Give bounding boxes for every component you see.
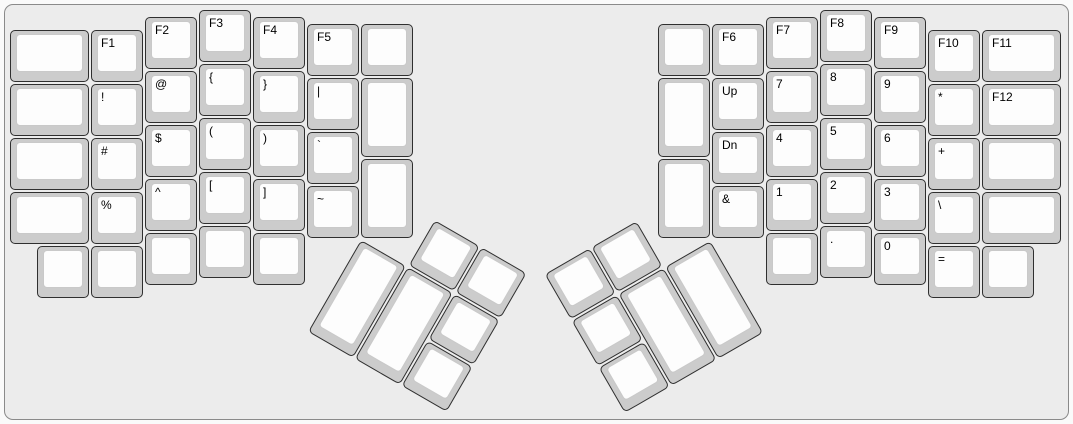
keytop: % <box>97 196 137 234</box>
keytop <box>367 28 407 66</box>
key-legend: % <box>101 198 112 213</box>
key-legend: F7 <box>776 23 790 38</box>
key-paren-close[interactable]: ) <box>253 125 305 177</box>
key-legend: F3 <box>209 16 223 31</box>
key-digit-5[interactable]: 5 <box>820 118 872 170</box>
key-digit-4[interactable]: 4 <box>766 125 818 177</box>
key-legend: 1 <box>776 185 783 200</box>
key-blank[interactable] <box>361 24 413 76</box>
keytop <box>552 254 606 307</box>
key-blank[interactable] <box>145 233 197 285</box>
key-legend: Dn <box>722 138 737 153</box>
keytop: . <box>826 230 866 268</box>
keytop: + <box>934 142 974 180</box>
keytop: F7 <box>772 21 812 59</box>
key-down[interactable]: Dn <box>712 132 764 184</box>
key-f8[interactable]: F8 <box>820 10 872 62</box>
key-legend: 7 <box>776 77 783 92</box>
key-legend: # <box>101 144 108 159</box>
key-brace-close[interactable]: } <box>253 71 305 123</box>
keytop <box>205 230 245 268</box>
key-legend: 6 <box>884 131 891 146</box>
key-legend: @ <box>155 77 167 92</box>
key-blank[interactable] <box>10 192 89 244</box>
key-legend: F6 <box>722 30 736 45</box>
keytop: ) <box>259 129 299 167</box>
key-legend: 2 <box>830 178 837 193</box>
key-digit-0[interactable]: 0 <box>874 233 926 285</box>
keytop: @ <box>151 75 191 113</box>
key-legend: \ <box>938 198 941 213</box>
keytop: 0 <box>880 237 920 275</box>
key-plus[interactable]: + <box>928 138 980 190</box>
key-legend: . <box>830 232 833 247</box>
key-legend: ( <box>209 124 213 139</box>
keytop <box>259 237 299 275</box>
keytop <box>466 253 520 306</box>
keytop: [ <box>205 176 245 214</box>
key-legend: ! <box>101 90 104 105</box>
keytop: & <box>718 190 758 228</box>
keytop <box>664 163 704 228</box>
keytop: ! <box>97 88 137 126</box>
key-f7[interactable]: F7 <box>766 17 818 69</box>
key-digit-2[interactable]: 2 <box>820 172 872 224</box>
key-blank[interactable] <box>658 78 710 157</box>
key-period[interactable]: . <box>820 226 872 278</box>
keytop <box>367 82 407 147</box>
key-legend: F12 <box>992 90 1013 105</box>
keytop: 2 <box>826 176 866 214</box>
key-blank[interactable] <box>361 78 413 157</box>
key-legend: F9 <box>884 23 898 38</box>
keytop: F2 <box>151 21 191 59</box>
key-legend: 5 <box>830 124 837 139</box>
keytop <box>599 227 653 280</box>
keytop: 8 <box>826 68 866 106</box>
key-legend: F1 <box>101 36 115 51</box>
keytop: \ <box>934 196 974 234</box>
key-pipe[interactable]: | <box>307 78 359 130</box>
key-blank[interactable] <box>658 159 710 238</box>
key-legend: & <box>722 192 730 207</box>
keytop: | <box>313 82 353 120</box>
keytop <box>988 142 1055 180</box>
keytop: } <box>259 75 299 113</box>
key-blank[interactable] <box>91 246 143 298</box>
keytop: F10 <box>934 34 974 72</box>
keytop <box>16 34 83 72</box>
key-legend: ] <box>263 185 266 200</box>
keytop <box>988 196 1055 234</box>
keytop <box>419 226 473 279</box>
keytop: ] <box>259 183 299 221</box>
key-digit-8[interactable]: 8 <box>820 64 872 116</box>
key-f10[interactable]: F10 <box>928 30 980 82</box>
key-ampersand[interactable]: & <box>712 186 764 238</box>
keytop: 4 <box>772 129 812 167</box>
key-f2[interactable]: F2 <box>145 17 197 69</box>
key-paren-open[interactable]: ( <box>199 118 251 170</box>
key-legend: ~ <box>317 192 324 207</box>
key-legend: 4 <box>776 131 783 146</box>
key-blank[interactable] <box>982 246 1034 298</box>
keytop: 1 <box>772 183 812 221</box>
keytop <box>664 82 704 147</box>
key-digit-3[interactable]: 3 <box>874 179 926 231</box>
key-blank[interactable] <box>766 233 818 285</box>
key-blank[interactable] <box>982 192 1061 244</box>
keytop: 9 <box>880 75 920 113</box>
key-legend: Up <box>722 84 737 99</box>
key-blank[interactable] <box>658 24 710 76</box>
key-legend: $ <box>155 131 162 146</box>
key-legend: F8 <box>830 16 844 31</box>
key-legend: 0 <box>884 239 891 254</box>
keytop: = <box>934 250 974 288</box>
keytop <box>16 196 83 234</box>
key-f4[interactable]: F4 <box>253 17 305 69</box>
key-digit-7[interactable]: 7 <box>766 71 818 123</box>
keytop <box>772 237 812 275</box>
key-legend: 9 <box>884 77 891 92</box>
keytop: ` <box>313 136 353 174</box>
keytop: ^ <box>151 183 191 221</box>
keytop: F4 <box>259 21 299 59</box>
key-legend: F11 <box>992 36 1012 51</box>
key-blank[interactable] <box>37 246 89 298</box>
keytop: 7 <box>772 75 812 113</box>
keytop: F8 <box>826 14 866 52</box>
key-f6[interactable]: F6 <box>712 24 764 76</box>
key-at[interactable]: @ <box>145 71 197 123</box>
keytop: F12 <box>988 88 1055 126</box>
key-hash[interactable]: # <box>91 138 143 190</box>
key-legend: + <box>938 144 945 159</box>
key-legend: 3 <box>884 185 891 200</box>
key-percent[interactable]: % <box>91 192 143 244</box>
keytop <box>97 250 137 288</box>
keytop: Dn <box>718 136 758 174</box>
key-legend: ` <box>317 138 321 153</box>
key-legend: | <box>317 84 320 99</box>
key-blank[interactable] <box>361 159 413 238</box>
keytop: F6 <box>718 28 758 66</box>
key-digit-1[interactable]: 1 <box>766 179 818 231</box>
key-exclamation[interactable]: ! <box>91 84 143 136</box>
keyboard-layout: F1!#%F2@$^F3{([F4})]F5|`~ F6UpDn&F7741F8… <box>0 0 1073 424</box>
key-legend: [ <box>209 178 212 193</box>
key-bracket-close[interactable]: ] <box>253 179 305 231</box>
key-blank[interactable] <box>10 84 89 136</box>
keytop: ( <box>205 122 245 160</box>
key-blank[interactable] <box>253 233 305 285</box>
key-blank[interactable] <box>10 138 89 190</box>
keytop: { <box>205 68 245 106</box>
keytop: 3 <box>880 183 920 221</box>
key-digit-9[interactable]: 9 <box>874 71 926 123</box>
key-equals[interactable]: = <box>928 246 980 298</box>
key-f9[interactable]: F9 <box>874 17 926 69</box>
key-caret[interactable]: ^ <box>145 179 197 231</box>
key-legend: F2 <box>155 23 169 38</box>
key-digit-6[interactable]: 6 <box>874 125 926 177</box>
key-asterisk[interactable]: * <box>928 84 980 136</box>
key-legend: = <box>938 252 945 267</box>
key-backtick[interactable]: ` <box>307 132 359 184</box>
keytop <box>151 237 191 275</box>
key-f11[interactable]: F11 <box>982 30 1061 82</box>
keytop <box>367 163 407 228</box>
key-legend: } <box>263 77 267 92</box>
keytop: F11 <box>988 34 1055 72</box>
key-legend: F5 <box>317 30 331 45</box>
key-up[interactable]: Up <box>712 78 764 130</box>
key-legend: F10 <box>938 36 959 51</box>
key-f1[interactable]: F1 <box>91 30 143 82</box>
key-legend: 8 <box>830 70 837 85</box>
keytop: F9 <box>880 21 920 59</box>
key-bracket-open[interactable]: [ <box>199 172 251 224</box>
key-f5[interactable]: F5 <box>307 24 359 76</box>
key-blank[interactable] <box>199 226 251 278</box>
key-f12[interactable]: F12 <box>982 84 1061 136</box>
key-tilde[interactable]: ~ <box>307 186 359 238</box>
keytop: # <box>97 142 137 180</box>
key-blank[interactable] <box>10 30 89 82</box>
keytop: $ <box>151 129 191 167</box>
keytop <box>664 28 704 66</box>
key-legend: ) <box>263 131 267 146</box>
keytop: F1 <box>97 34 137 72</box>
keytop: F3 <box>205 14 245 52</box>
key-legend: ^ <box>155 185 161 200</box>
key-legend: * <box>938 90 943 105</box>
keytop: 6 <box>880 129 920 167</box>
key-brace-open[interactable]: { <box>199 64 251 116</box>
keytop: F5 <box>313 28 353 66</box>
keytop <box>16 142 83 180</box>
keytop <box>16 88 83 126</box>
key-f3[interactable]: F3 <box>199 10 251 62</box>
keytop: ~ <box>313 190 353 228</box>
key-legend: { <box>209 70 213 85</box>
keytop: * <box>934 88 974 126</box>
keytop: 5 <box>826 122 866 160</box>
keytop: Up <box>718 82 758 120</box>
key-backslash[interactable]: \ <box>928 192 980 244</box>
keytop <box>43 250 83 288</box>
key-dollar[interactable]: $ <box>145 125 197 177</box>
key-blank[interactable] <box>982 138 1061 190</box>
keytop <box>988 250 1028 288</box>
key-legend: F4 <box>263 23 277 38</box>
